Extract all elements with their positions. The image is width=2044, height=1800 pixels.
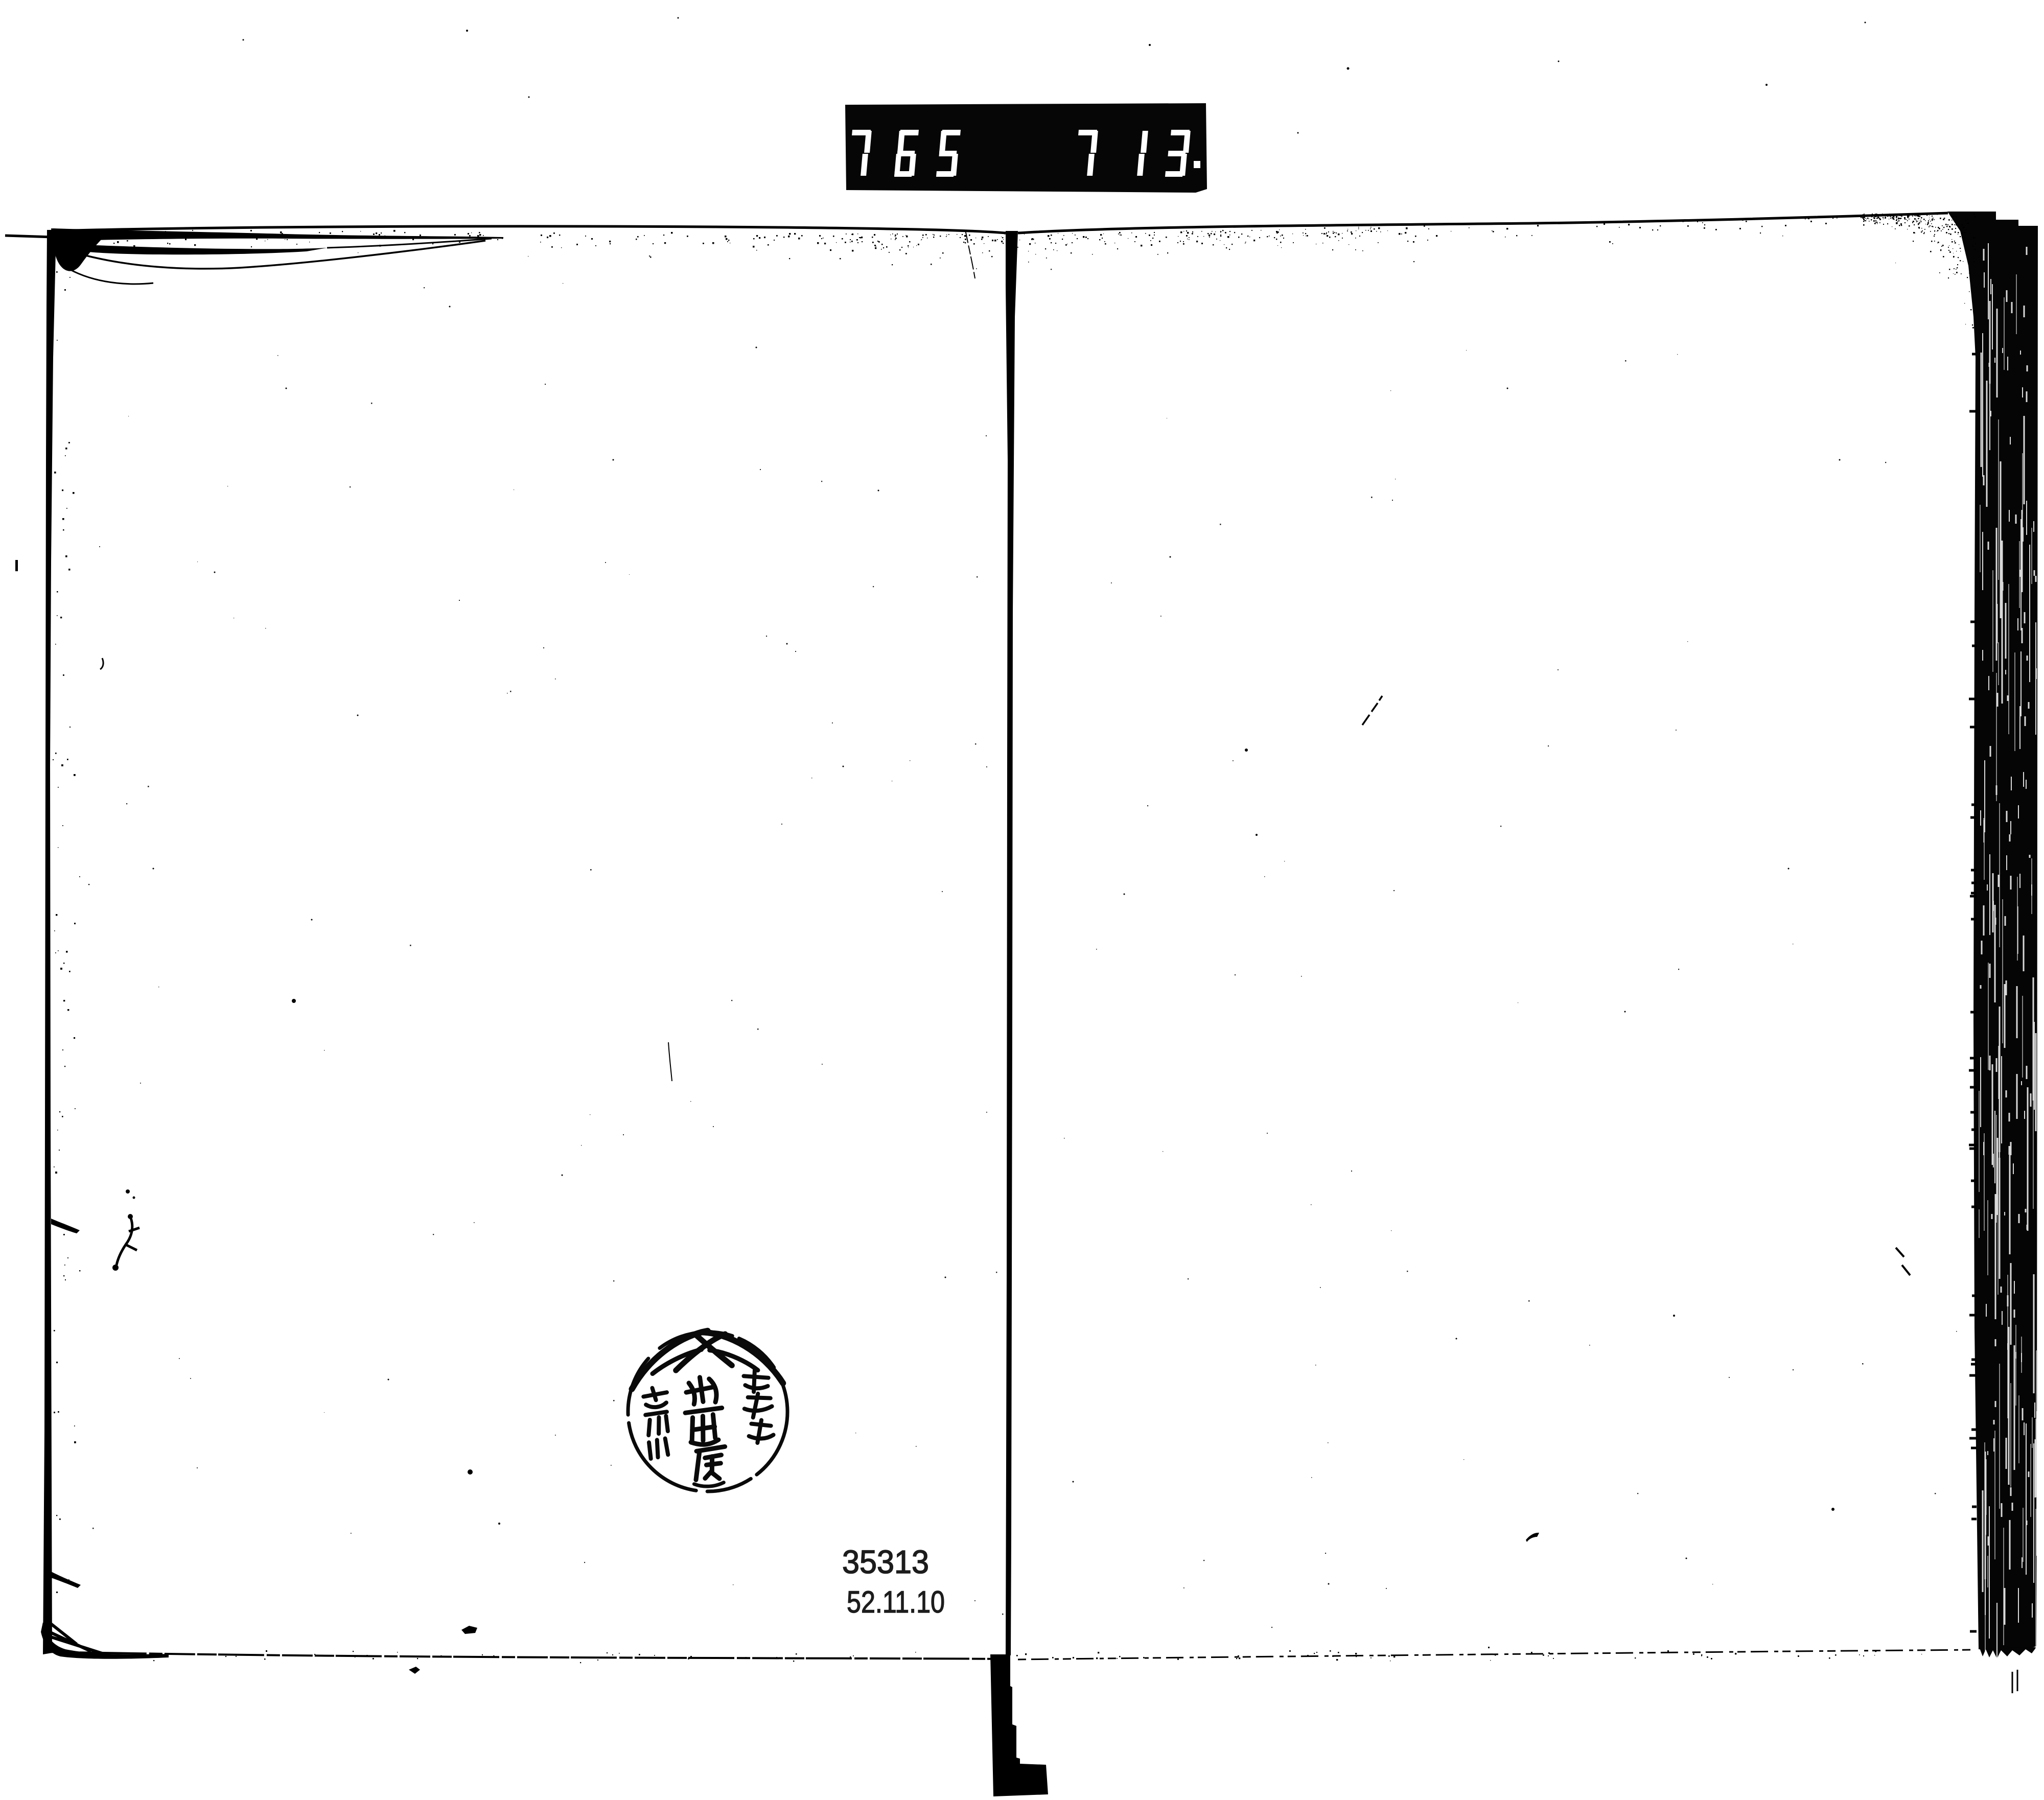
svg-text:35313: 35313 <box>842 1544 929 1580</box>
svg-text:52.11.10: 52.11.10 <box>847 1585 945 1619</box>
